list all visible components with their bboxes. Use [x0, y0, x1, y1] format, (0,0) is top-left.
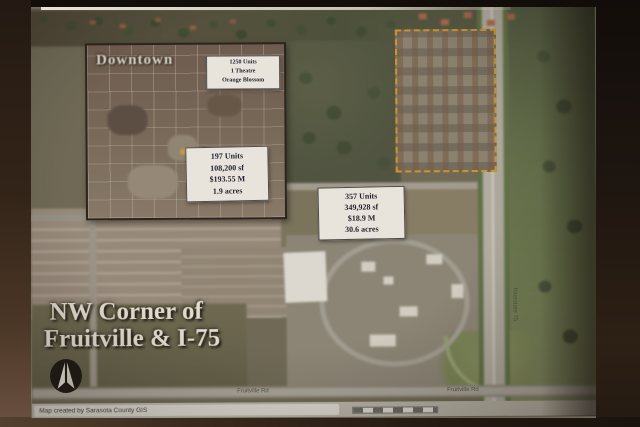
- building-roof: [451, 284, 463, 298]
- slide-title-line2: Fruitville & I-75: [44, 325, 221, 353]
- wall-right: [596, 0, 640, 427]
- downtown-stats-infobox: 197 Units 108,200 sf $193.55 M 1.9 acres: [185, 146, 269, 203]
- aerial-map: Downtown 1250 Units 1 Theatre Orange Blo…: [31, 7, 596, 418]
- screen-top-highlight: [41, 7, 511, 10]
- building-roof: [426, 254, 442, 264]
- program-line: 1 Theatre: [207, 67, 279, 76]
- program-line: 1250 Units: [207, 58, 279, 67]
- site-parcel-outline: [395, 29, 497, 173]
- stats-line: 1.9 acres: [187, 184, 268, 197]
- slide-title: NW Corner of Fruitville & I-75: [50, 298, 221, 353]
- program-line: Orange Blossom: [207, 76, 279, 85]
- fruitville-road-label-east: Fruitville Rd: [447, 387, 479, 393]
- site-stats-infobox: 357 Units 349,928 sf $18.9 M 30.6 acres: [317, 186, 405, 241]
- wooded-area-center: [280, 40, 401, 187]
- downtown-program-infobox: 1250 Units 1 Theatre Orange Blossom: [206, 55, 280, 89]
- stats-line: 30.6 acres: [319, 223, 404, 236]
- north-arrow-icon: [49, 357, 83, 394]
- inset-building-block: [207, 94, 241, 116]
- scale-bar: [352, 406, 438, 414]
- rooftop-dots-texture: [90, 20, 96, 24]
- fruitville-road-label-west: Fruitville Rd: [237, 388, 269, 394]
- interstate-75-label: Interstate 75: [511, 288, 517, 321]
- building-roof: [383, 277, 393, 285]
- map-attribution: Map created by Sarasota County GIS: [34, 404, 339, 417]
- inset-building-block: [128, 165, 178, 199]
- building-roof: [370, 334, 396, 346]
- building-roof: [361, 262, 375, 272]
- photo-of-projected-slide: Downtown 1250 Units 1 Theatre Orange Blo…: [0, 0, 640, 427]
- tree-dots-texture: [40, 17, 47, 23]
- wall-bottom: [0, 417, 640, 427]
- projector-screen: Downtown 1250 Units 1 Theatre Orange Blo…: [31, 7, 596, 418]
- wall-left: [0, 0, 31, 427]
- slide-title-line1: NW Corner of: [50, 298, 221, 326]
- downtown-inset-title: Downtown: [96, 52, 173, 69]
- building-roof: [400, 306, 418, 316]
- large-white-roof-building: [283, 251, 327, 303]
- inset-building-block: [107, 105, 147, 135]
